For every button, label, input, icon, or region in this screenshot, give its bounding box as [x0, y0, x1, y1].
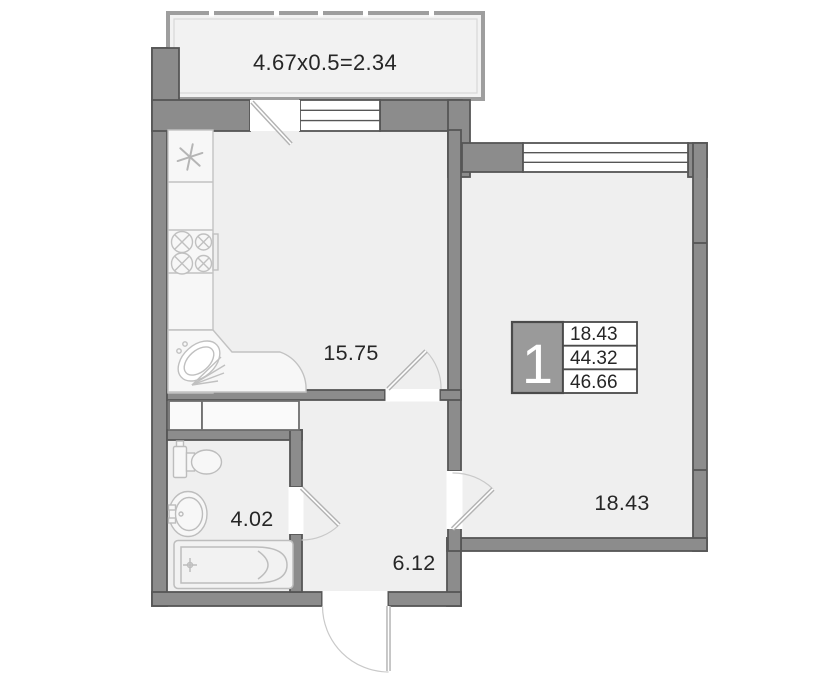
bathtub-icon [174, 541, 293, 589]
washbasin-icon [169, 492, 208, 537]
service-duct [169, 401, 299, 430]
floor-plan-canvas: 1 18.43 44.32 46.66 4.67x0.5=2.34 15.75 … [0, 0, 817, 700]
bathroom-area-label: 4.02 [230, 507, 273, 531]
hallway-area-label: 6.12 [392, 551, 435, 575]
floor-plan-page: 1 18.43 44.32 46.66 4.67x0.5=2.34 15.75 … [0, 0, 817, 700]
entrance-door [323, 606, 389, 672]
balcony-dimension-label: 4.67x0.5=2.34 [253, 50, 397, 75]
window-kitchen [300, 100, 380, 131]
unit-number: 1 [522, 332, 553, 395]
unit-info-box: 1 18.43 44.32 46.66 [512, 322, 637, 395]
bedroom-area-label: 18.43 [594, 491, 649, 515]
info-row-total-area: 46.66 [570, 372, 618, 393]
living-kitchen-area-label: 15.75 [323, 341, 378, 365]
window-bedroom [523, 143, 688, 172]
info-row-living-area: 18.43 [570, 324, 618, 345]
info-row-area: 44.32 [570, 348, 618, 369]
